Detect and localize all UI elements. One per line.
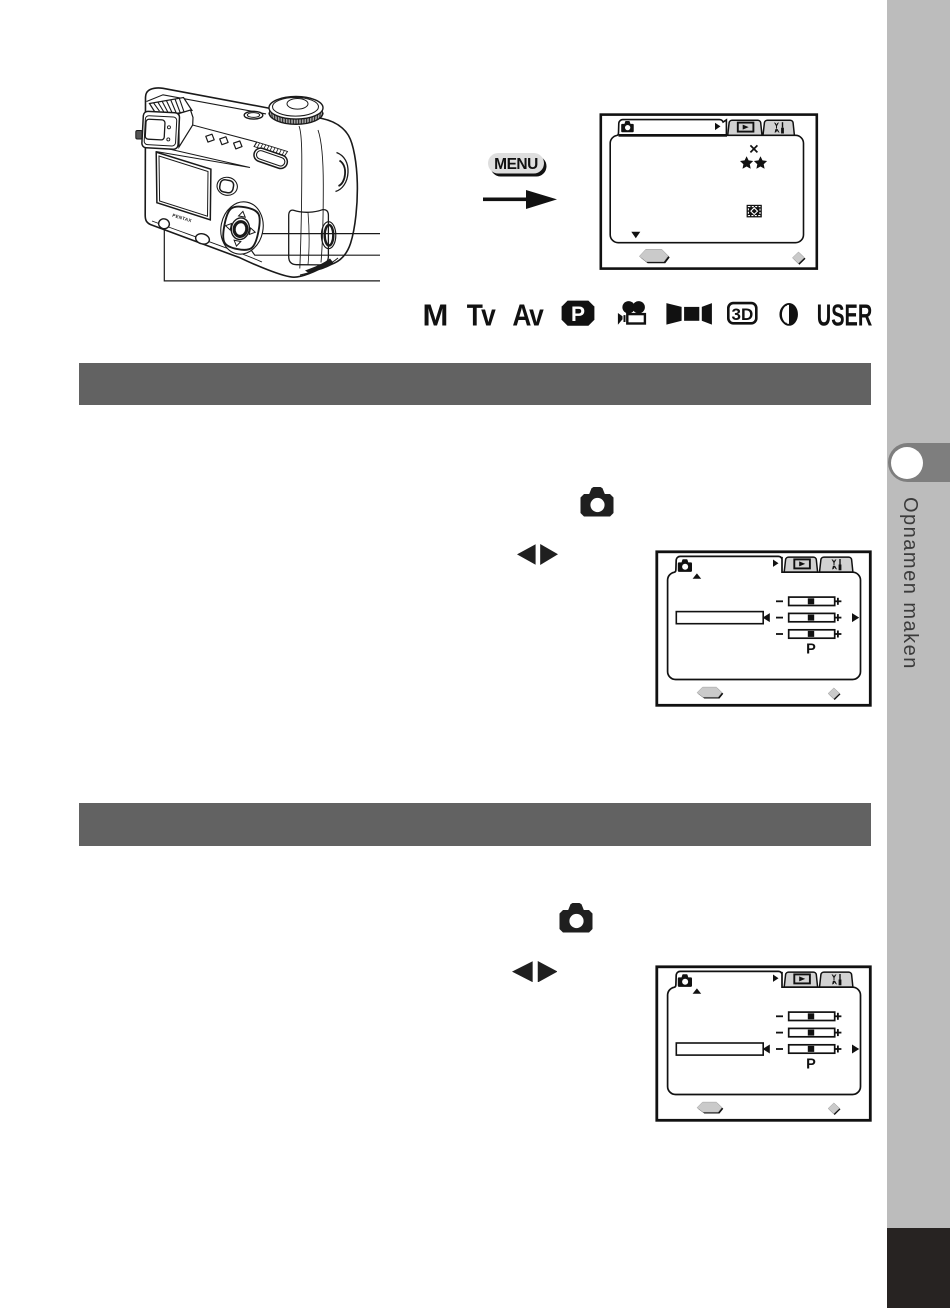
svg-text:P: P xyxy=(806,642,816,658)
svg-text:USER: USER xyxy=(817,297,873,332)
svg-text:P: P xyxy=(806,1057,816,1073)
svg-text:M: M xyxy=(423,298,449,332)
svg-text:Tv: Tv xyxy=(467,299,496,332)
svg-text:Av: Av xyxy=(512,299,543,332)
svg-text:MENU: MENU xyxy=(494,156,538,173)
svg-text:3D: 3D xyxy=(732,305,754,324)
svg-text:P: P xyxy=(571,303,585,326)
